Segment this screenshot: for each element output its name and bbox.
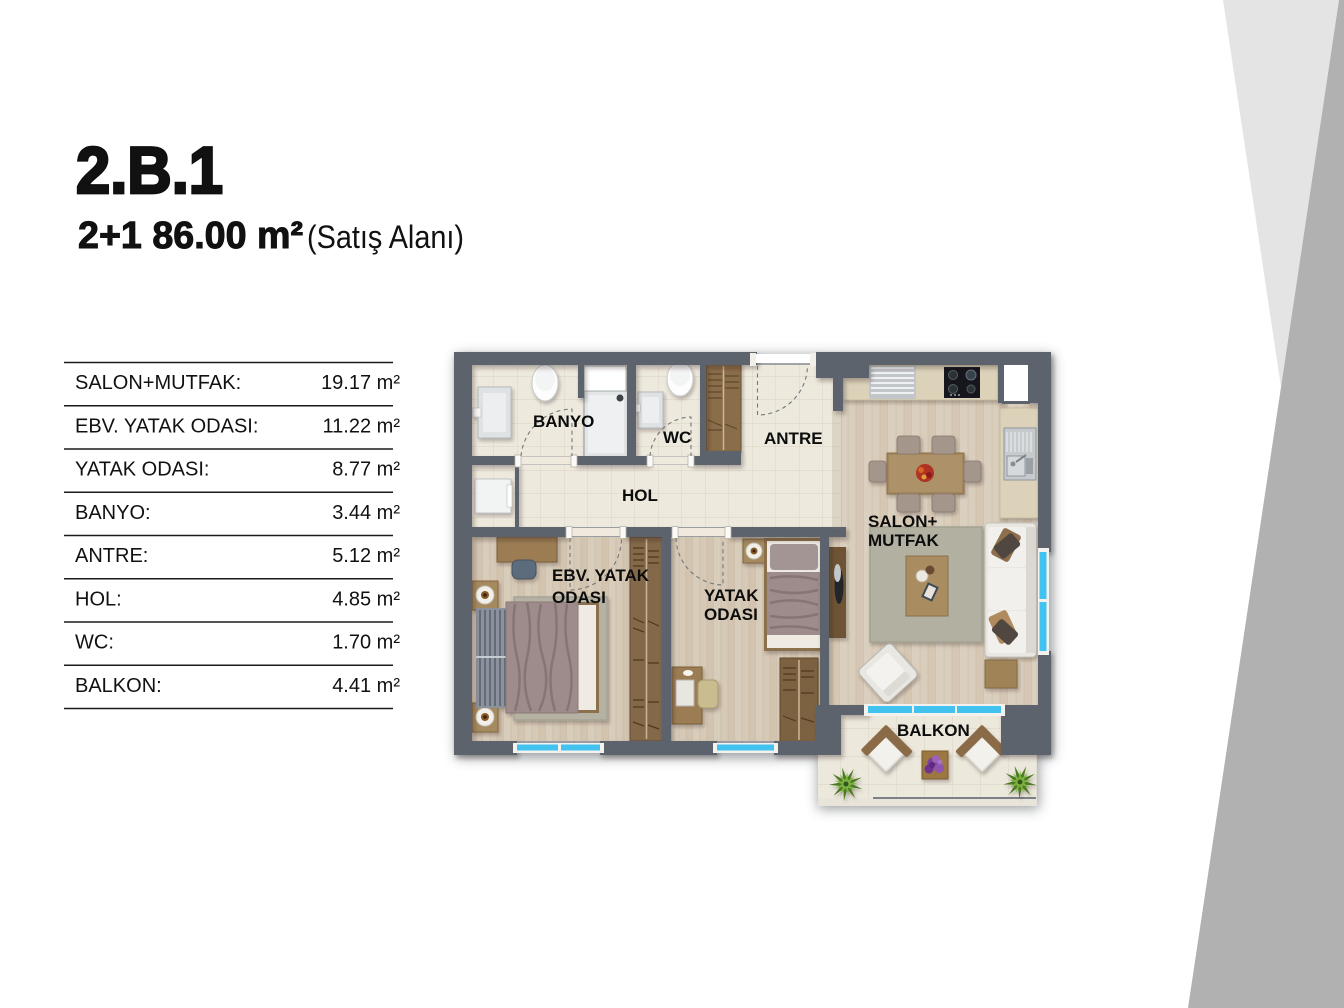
svg-text:BANYO:: BANYO:	[75, 502, 151, 524]
svg-text:8.77 m²: 8.77 m²	[332, 459, 400, 481]
svg-text:EBV. YATAK ODASI:: EBV. YATAK ODASI:	[75, 415, 258, 437]
svg-text:1.70 m²: 1.70 m²	[332, 632, 400, 654]
svg-text:2+1 86.00 m²: 2+1 86.00 m²	[78, 215, 303, 257]
svg-text:2.B.1: 2.B.1	[76, 133, 223, 207]
svg-text:5.12 m²: 5.12 m²	[332, 545, 400, 567]
svg-text:ANTRE: ANTRE	[764, 429, 823, 448]
svg-text:YATAK ODASI:: YATAK ODASI:	[75, 459, 209, 481]
svg-text:11.22 m²: 11.22 m²	[323, 415, 401, 437]
svg-text:4.85 m²: 4.85 m²	[332, 588, 400, 610]
svg-text:YATAK: YATAK	[704, 586, 759, 605]
svg-text:ODASI: ODASI	[552, 588, 606, 607]
svg-text:SALON+: SALON+	[868, 512, 938, 531]
svg-text:SALON+MUTFAK:: SALON+MUTFAK:	[75, 372, 241, 394]
svg-text:HOL:: HOL:	[75, 588, 122, 610]
svg-text:BANYO: BANYO	[533, 412, 594, 431]
svg-text:HOL: HOL	[622, 486, 658, 505]
svg-text:BALKON:: BALKON:	[75, 675, 162, 697]
svg-text:WC: WC	[663, 428, 691, 447]
svg-text:ODASI: ODASI	[704, 605, 758, 624]
svg-text:MUTFAK: MUTFAK	[868, 531, 940, 550]
svg-text:BALKON: BALKON	[897, 721, 970, 740]
svg-text:4.41 m²: 4.41 m²	[332, 675, 400, 697]
svg-text:EBV. YATAK: EBV. YATAK	[552, 566, 650, 585]
svg-text:19.17 m²: 19.17 m²	[321, 372, 400, 394]
svg-text:WC:: WC:	[75, 632, 114, 654]
svg-text:(Satış Alanı): (Satış Alanı)	[307, 219, 464, 255]
svg-text:ANTRE:: ANTRE:	[75, 545, 148, 567]
svg-text:3.44 m²: 3.44 m²	[332, 502, 400, 524]
